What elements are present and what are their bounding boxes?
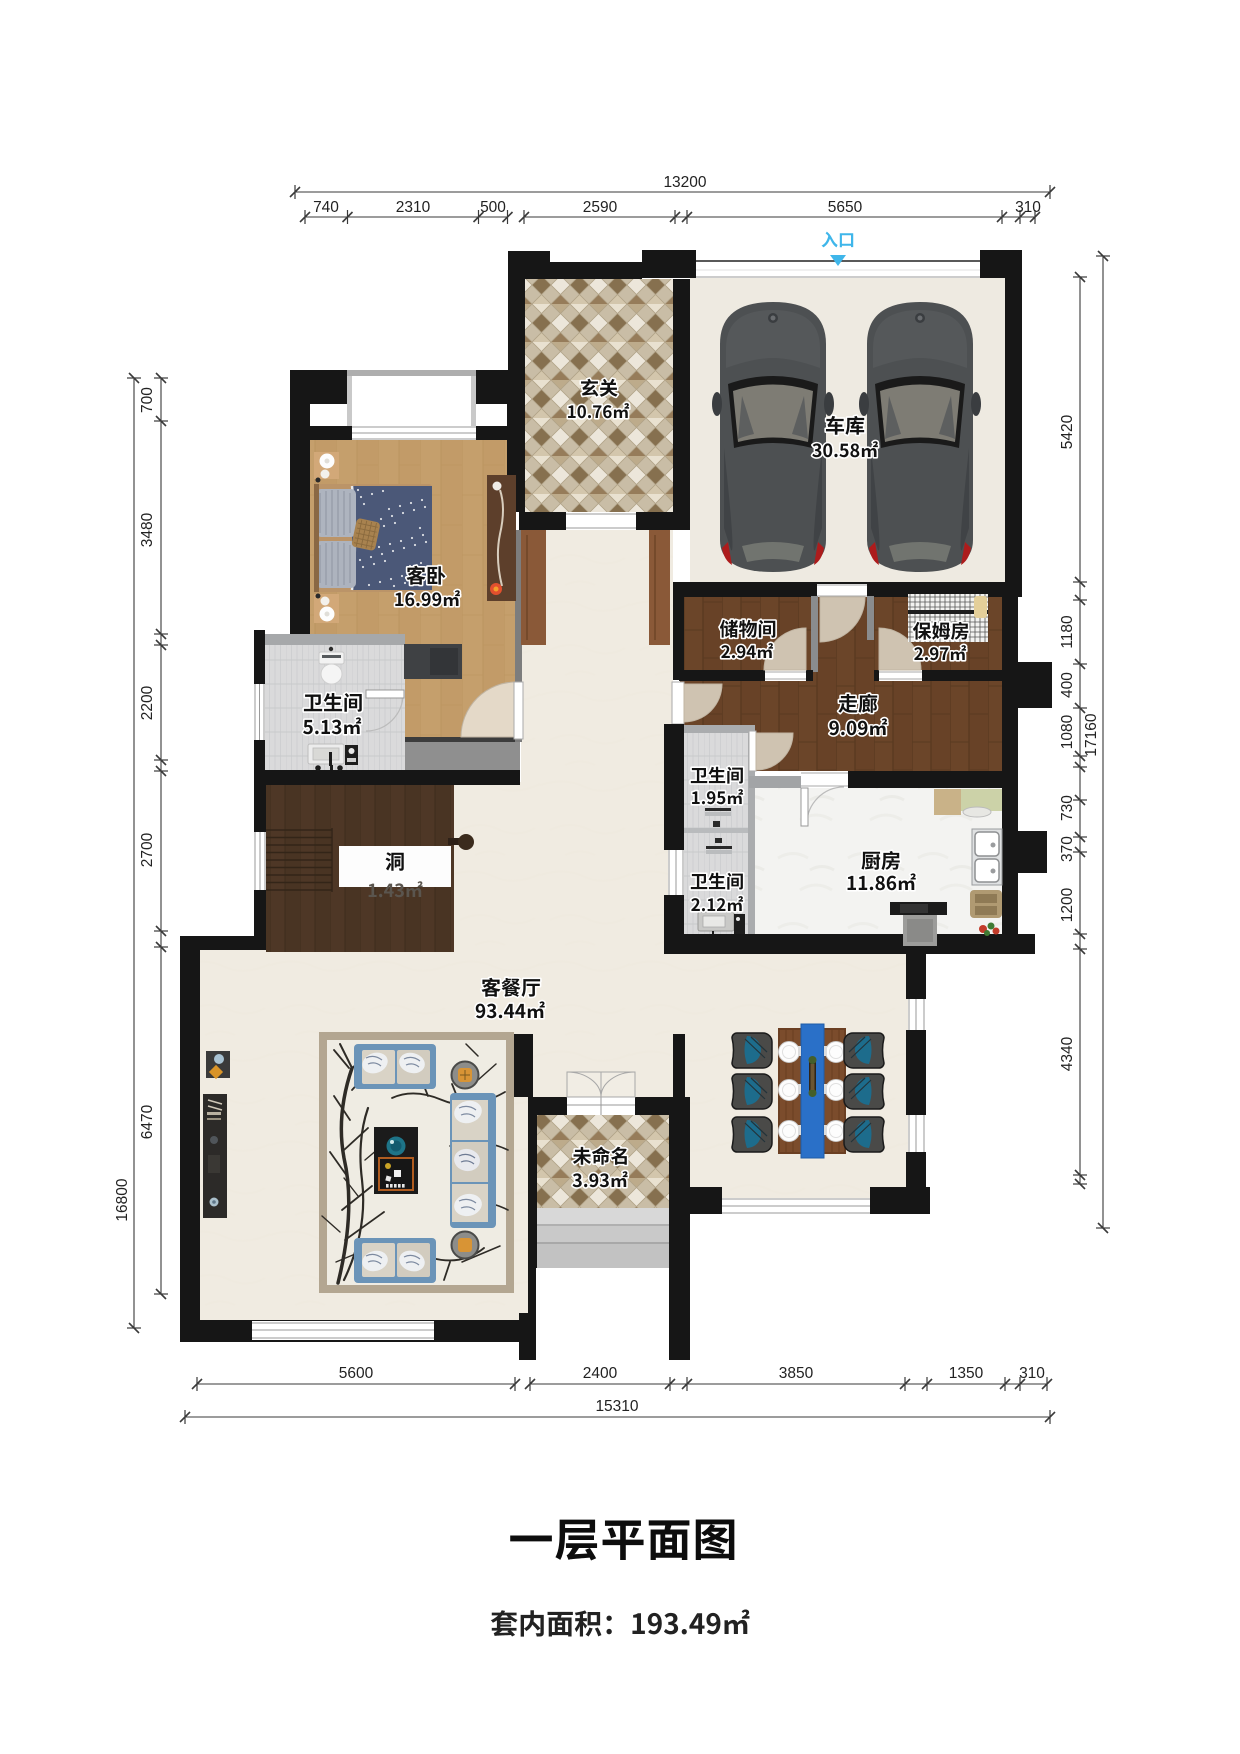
svg-text:1180: 1180 — [1059, 615, 1076, 649]
svg-text:370: 370 — [1059, 836, 1076, 862]
svg-text:4340: 4340 — [1059, 1036, 1076, 1071]
svg-text:1350: 1350 — [949, 1365, 984, 1382]
svg-text:15310: 15310 — [595, 1398, 638, 1415]
svg-text:17160: 17160 — [1083, 713, 1100, 756]
svg-text:2310: 2310 — [396, 199, 431, 216]
svg-text:500: 500 — [480, 199, 506, 216]
svg-text:5420: 5420 — [1059, 414, 1076, 449]
svg-text:1200: 1200 — [1059, 887, 1076, 922]
svg-text:310: 310 — [1019, 1365, 1045, 1382]
svg-text:5600: 5600 — [339, 1365, 374, 1382]
svg-text:3850: 3850 — [779, 1365, 814, 1382]
svg-text:700: 700 — [139, 387, 156, 413]
svg-text:2400: 2400 — [583, 1365, 618, 1382]
svg-text:730: 730 — [1059, 795, 1076, 821]
svg-text:2700: 2700 — [139, 832, 156, 867]
svg-text:3480: 3480 — [139, 512, 156, 547]
svg-text:5650: 5650 — [828, 199, 863, 216]
svg-text:6470: 6470 — [139, 1104, 156, 1139]
svg-text:400: 400 — [1059, 672, 1076, 698]
svg-text:16800: 16800 — [114, 1178, 131, 1221]
svg-text:310: 310 — [1015, 199, 1041, 216]
svg-text:740: 740 — [313, 199, 339, 216]
svg-text:1080: 1080 — [1059, 714, 1076, 749]
svg-text:2590: 2590 — [583, 199, 618, 216]
svg-text:13200: 13200 — [663, 174, 706, 191]
svg-text:2200: 2200 — [139, 685, 156, 720]
